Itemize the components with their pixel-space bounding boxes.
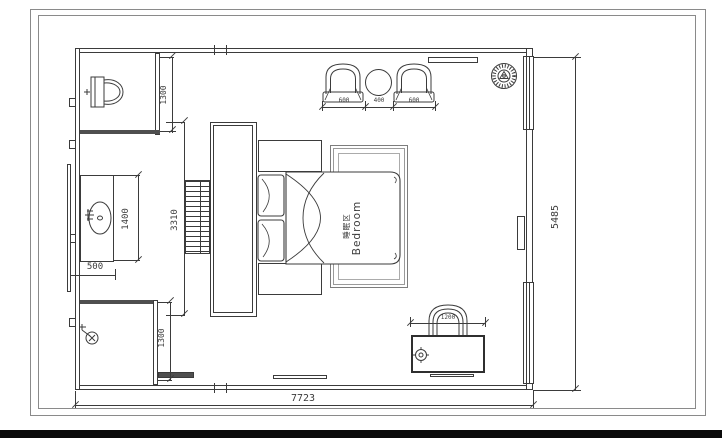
dim-label-overall-width: 7723 bbox=[275, 394, 331, 404]
dim-label-seat-mid: 400 bbox=[364, 98, 394, 106]
window-right-top bbox=[523, 56, 534, 130]
dim-line bbox=[170, 302, 171, 381]
wardrobe-inner bbox=[213, 125, 253, 313]
wall-joint-tick bbox=[226, 45, 227, 55]
shower-threshold-wall bbox=[80, 300, 153, 304]
wall-joint-tick bbox=[214, 383, 215, 393]
dim-label-vanity-depth: 500 bbox=[80, 263, 110, 273]
floor-mat bbox=[273, 375, 327, 379]
dim-label-seat-left: 600 bbox=[324, 98, 364, 106]
nightstand-top bbox=[258, 140, 322, 172]
wall-stub bbox=[69, 98, 76, 107]
curtain-box bbox=[428, 57, 478, 63]
wall-stub bbox=[69, 318, 76, 327]
dim-label-shower-depth: 1300 bbox=[158, 323, 168, 353]
wall-bottom bbox=[75, 385, 533, 390]
window-right-bottom bbox=[523, 282, 534, 384]
wall-jog bbox=[517, 216, 525, 250]
dim-label-vanity-length: 1400 bbox=[122, 202, 132, 236]
hatched-cabinet bbox=[185, 180, 210, 254]
side-table-icon bbox=[365, 69, 392, 96]
dim-line bbox=[575, 58, 576, 390]
wall-joint-tick bbox=[226, 383, 227, 393]
wall-stub bbox=[69, 140, 76, 149]
wc-threshold bbox=[80, 130, 160, 134]
dim-extension bbox=[115, 269, 116, 280]
dim-extension bbox=[70, 269, 71, 280]
ceiling-fan-icon bbox=[490, 62, 518, 90]
room-label-en: Bedroom bbox=[352, 193, 364, 263]
dim-line bbox=[184, 122, 185, 316]
floorplan-canvas: 1300 1400 500 1300 3310 bbox=[0, 0, 722, 438]
dim-label-wc-depth: 1300 bbox=[160, 80, 170, 110]
toilet-icon bbox=[81, 72, 129, 112]
dim-line bbox=[75, 405, 533, 406]
dim-label-seat-right: 600 bbox=[394, 98, 434, 106]
wall-top bbox=[75, 48, 533, 53]
shower-icon bbox=[77, 323, 101, 347]
sink-icon bbox=[83, 196, 113, 240]
dim-line bbox=[138, 176, 139, 261]
desk-base bbox=[430, 374, 474, 377]
lamp-icon bbox=[412, 346, 430, 364]
dim-line bbox=[322, 107, 435, 108]
dim-label-wardrobe-length: 3310 bbox=[171, 203, 181, 237]
title-bar-rule bbox=[0, 430, 722, 438]
door-threshold bbox=[158, 372, 194, 378]
dim-line bbox=[70, 275, 116, 276]
bed-icon bbox=[256, 170, 404, 266]
dim-label-overall-height: 5485 bbox=[551, 199, 563, 235]
nightstand-bottom bbox=[258, 263, 322, 295]
wall-joint-tick bbox=[214, 45, 215, 55]
